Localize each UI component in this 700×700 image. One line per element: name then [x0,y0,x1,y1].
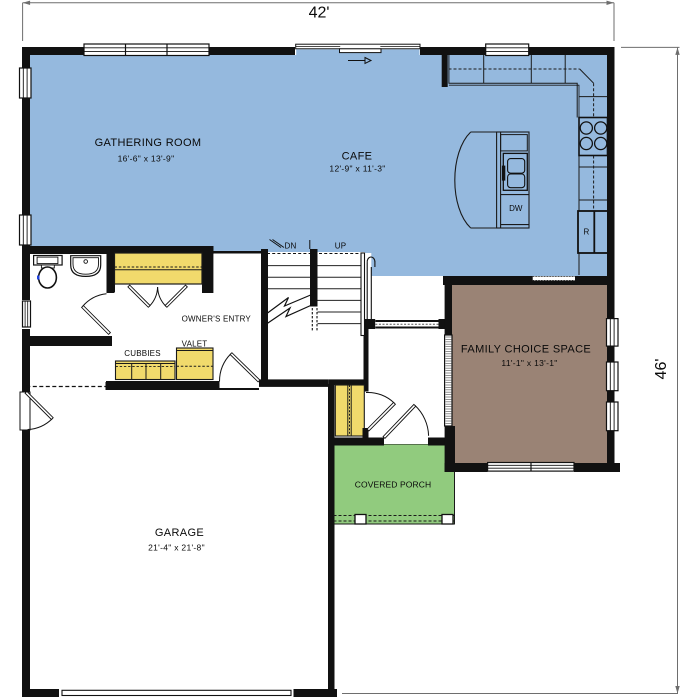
svg-text:UP: UP [335,242,347,251]
svg-text:CAFE: CAFE [342,151,373,163]
svg-text:OWNER'S ENTRY: OWNER'S ENTRY [182,314,252,323]
svg-text:COVERED PORCH: COVERED PORCH [355,480,431,490]
svg-text:CUBBIES: CUBBIES [124,349,161,358]
svg-text:46': 46' [653,359,670,380]
svg-text:DW: DW [509,204,523,213]
svg-text:12'-9" x 11'-3": 12'-9" x 11'-3" [329,164,385,174]
svg-text:42': 42' [309,5,330,22]
svg-text:16'-6" x 13'-9": 16'-6" x 13'-9" [118,154,175,164]
svg-text:R: R [584,228,590,237]
svg-text:21'-4" x 21'-8": 21'-4" x 21'-8" [148,542,205,552]
svg-text:GARAGE: GARAGE [155,527,204,539]
svg-text:VALET: VALET [182,340,208,349]
svg-text:11'-1" x 13'-1": 11'-1" x 13'-1" [501,358,557,368]
svg-text:GATHERING ROOM: GATHERING ROOM [95,137,202,149]
svg-text:FAMILY CHOICE SPACE: FAMILY CHOICE SPACE [461,344,591,356]
svg-text:DN: DN [285,242,297,251]
